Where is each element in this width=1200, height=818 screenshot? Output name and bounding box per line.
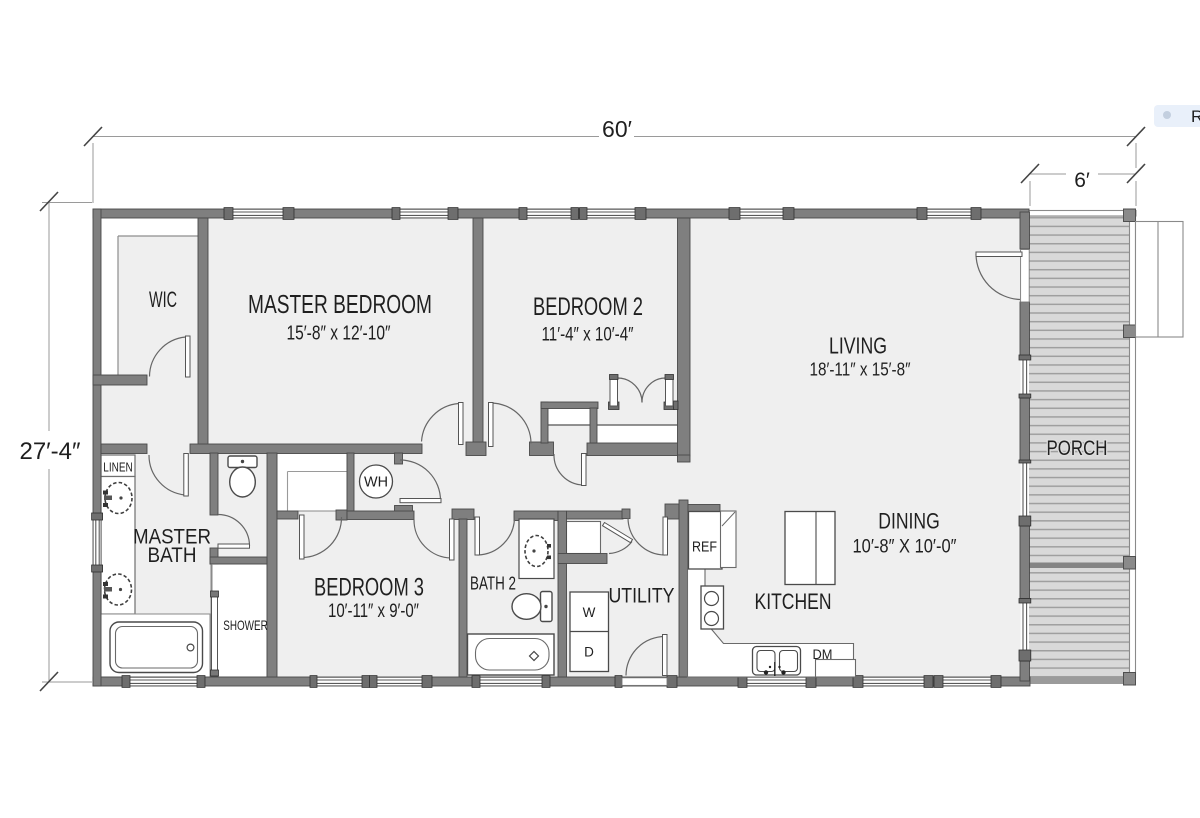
svg-text:R: R bbox=[1191, 107, 1200, 126]
svg-text:60′: 60′ bbox=[602, 116, 632, 142]
svg-text:27′-4″: 27′-4″ bbox=[19, 438, 81, 465]
svg-text:6′: 6′ bbox=[1074, 169, 1090, 192]
svg-text:MASTER BEDROOM: MASTER BEDROOM bbox=[248, 289, 432, 319]
svg-text:DM: DM bbox=[813, 647, 833, 662]
svg-text:SHOWER: SHOWER bbox=[223, 617, 268, 633]
svg-text:BATH 2: BATH 2 bbox=[470, 574, 516, 594]
svg-text:11′-4″ x 10′-4″: 11′-4″ x 10′-4″ bbox=[542, 324, 634, 346]
svg-text:BEDROOM 3: BEDROOM 3 bbox=[314, 574, 424, 602]
svg-text:REF: REF bbox=[692, 539, 717, 556]
svg-text:LINEN: LINEN bbox=[103, 461, 133, 475]
svg-text:BATH: BATH bbox=[148, 544, 197, 567]
svg-text:WIC: WIC bbox=[149, 287, 177, 312]
svg-text:D: D bbox=[584, 645, 594, 660]
svg-text:UTILITY: UTILITY bbox=[609, 585, 675, 608]
svg-text:18′-11″ x 15′-8″: 18′-11″ x 15′-8″ bbox=[810, 359, 911, 380]
svg-text:W: W bbox=[583, 605, 596, 620]
svg-text:LIVING: LIVING bbox=[829, 333, 887, 359]
svg-text:KITCHEN: KITCHEN bbox=[755, 589, 832, 614]
svg-text:PORCH: PORCH bbox=[1047, 437, 1108, 460]
svg-text:WH: WH bbox=[364, 475, 388, 491]
svg-text:BEDROOM 2: BEDROOM 2 bbox=[533, 293, 643, 321]
svg-text:10′-8″ X 10′-0″: 10′-8″ X 10′-0″ bbox=[853, 536, 957, 558]
svg-text:15′-8″ x 12′-10″: 15′-8″ x 12′-10″ bbox=[287, 323, 391, 345]
svg-text:10′-11″ x 9′-0″: 10′-11″ x 9′-0″ bbox=[328, 600, 419, 622]
svg-text:DINING: DINING bbox=[878, 509, 940, 534]
